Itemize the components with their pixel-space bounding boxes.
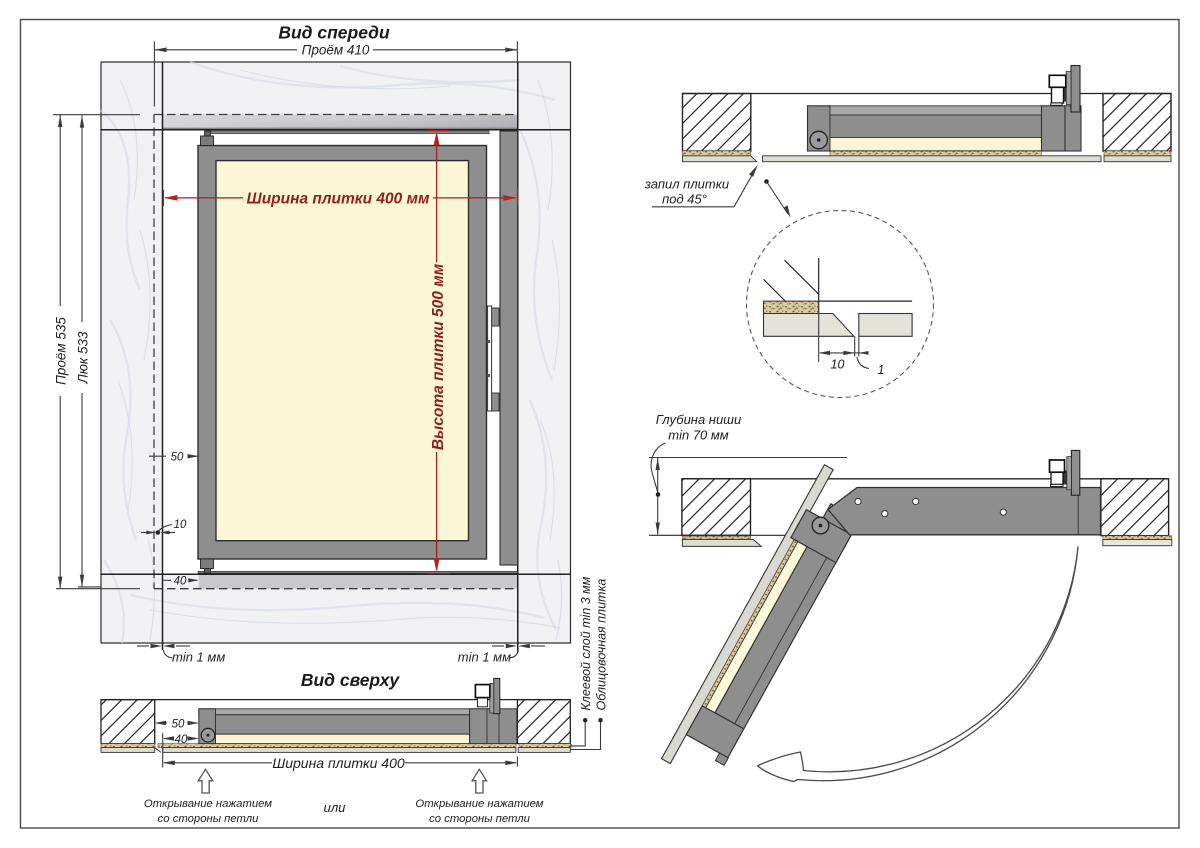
svg-text:или: или — [324, 800, 346, 815]
svg-text:Вид сверху: Вид сверху — [301, 670, 401, 690]
svg-text:под 45°: под 45° — [662, 192, 707, 207]
svg-text:Вид спереди: Вид спереди — [278, 23, 390, 43]
svg-text:Открывание нажатием: Открывание нажатием — [415, 798, 543, 810]
svg-text:Открывание нажатием: Открывание нажатием — [144, 798, 272, 810]
svg-text:Глубина ниши: Глубина ниши — [656, 412, 741, 427]
svg-text:со стороны петли: со стороны петли — [158, 813, 259, 825]
svg-text:10: 10 — [174, 519, 187, 531]
svg-text:Клеевой слой min 3 мм: Клеевой слой min 3 мм — [579, 576, 593, 710]
svg-text:Ширина плитки 400 мм: Ширина плитки 400 мм — [247, 191, 430, 208]
svg-text:50: 50 — [172, 718, 185, 730]
svg-text:min 1 мм: min 1 мм — [458, 650, 511, 665]
svg-text:Люк 533: Люк 533 — [76, 331, 91, 385]
svg-text:Проём 535: Проём 535 — [54, 317, 69, 385]
svg-text:40: 40 — [175, 734, 188, 746]
svg-text:Ширина плитки 400: Ширина плитки 400 — [272, 755, 405, 771]
svg-text:запил плитки: запил плитки — [644, 177, 729, 192]
svg-text:1: 1 — [878, 363, 885, 377]
svg-text:Проём 410: Проём 410 — [302, 43, 370, 58]
svg-text:Облицовочная плитка: Облицовочная плитка — [595, 579, 609, 711]
svg-text:Высота плитки 500 мм: Высота плитки 500 мм — [430, 263, 447, 450]
svg-text:10: 10 — [831, 358, 845, 372]
svg-text:min 1 мм: min 1 мм — [172, 650, 225, 665]
svg-text:min 70 мм: min 70 мм — [668, 428, 729, 443]
svg-text:40: 40 — [174, 576, 187, 588]
svg-text:со стороны петли: со стороны петли — [429, 813, 530, 825]
svg-text:50: 50 — [171, 452, 184, 464]
